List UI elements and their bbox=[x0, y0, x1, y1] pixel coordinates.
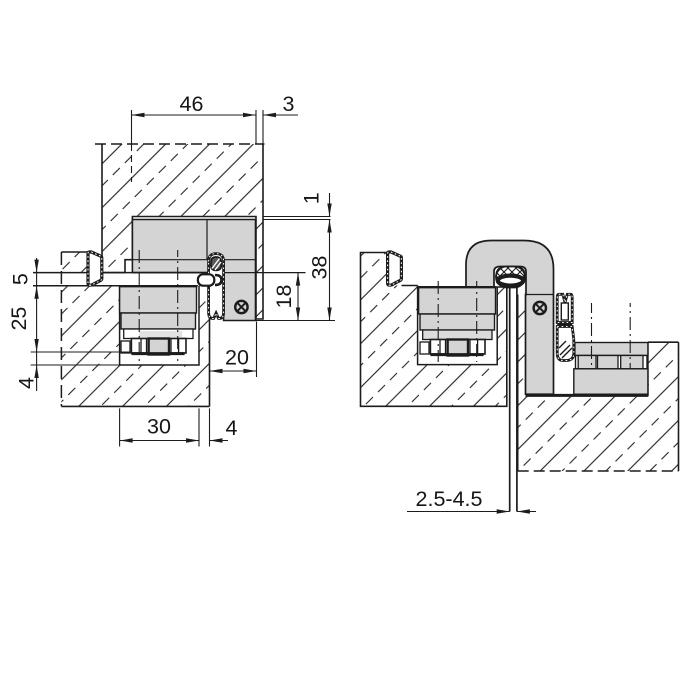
svg-text:4: 4 bbox=[226, 416, 238, 440]
svg-text:46: 46 bbox=[180, 92, 204, 116]
svg-text:4: 4 bbox=[15, 377, 39, 389]
svg-text:18: 18 bbox=[272, 285, 296, 309]
svg-text:3: 3 bbox=[283, 92, 295, 116]
svg-text:20: 20 bbox=[225, 346, 249, 370]
svg-text:1: 1 bbox=[300, 192, 324, 204]
svg-text:38: 38 bbox=[308, 256, 332, 280]
svg-text:30: 30 bbox=[147, 415, 171, 439]
svg-text:25: 25 bbox=[7, 307, 31, 331]
svg-text:2.5-4.5: 2.5-4.5 bbox=[416, 487, 483, 511]
svg-text:5: 5 bbox=[9, 273, 33, 285]
